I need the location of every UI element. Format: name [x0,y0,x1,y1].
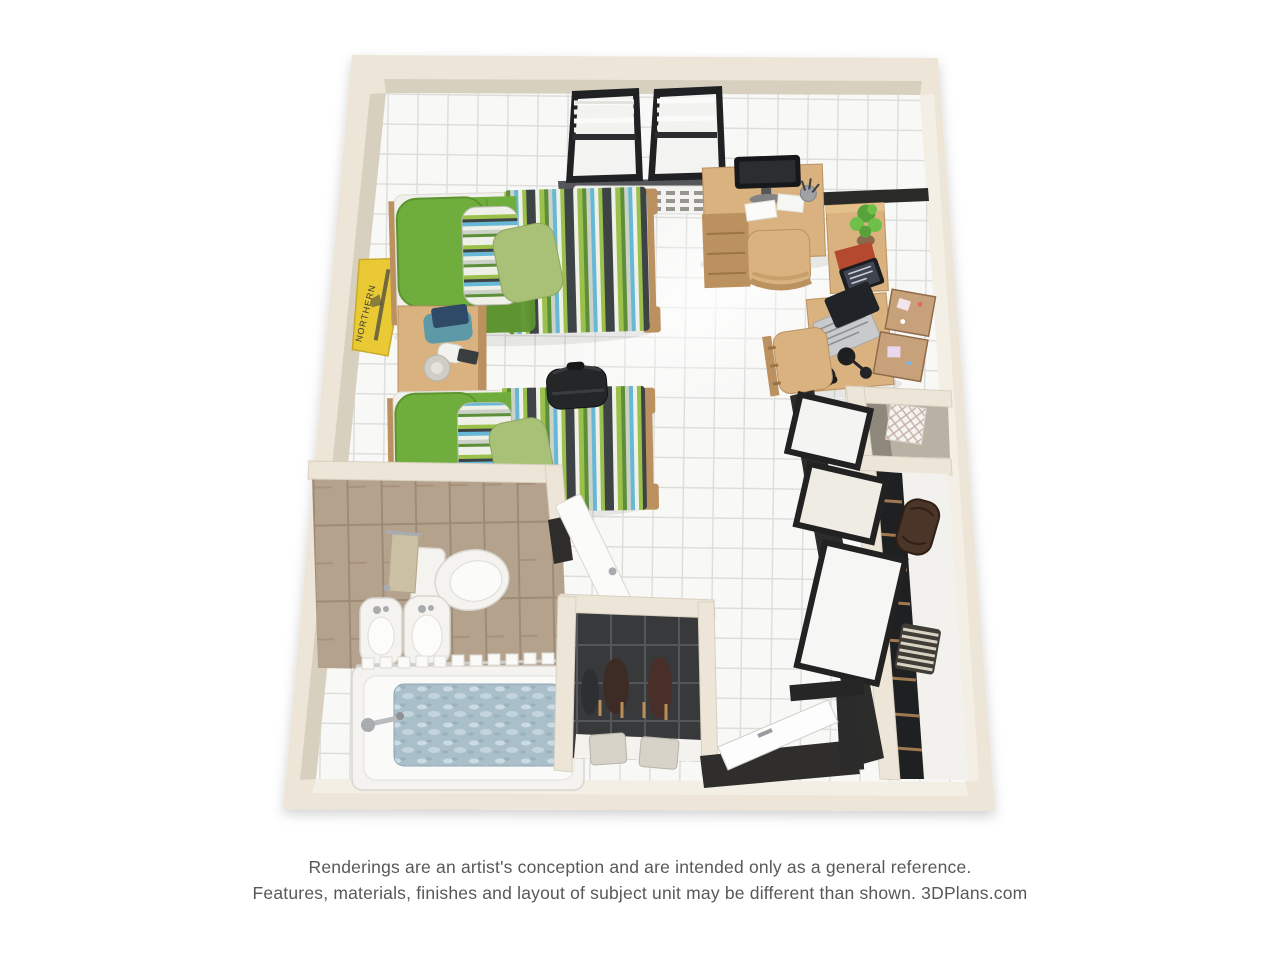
wardrobe-closet [554,594,718,776]
shoe-rack [894,623,941,675]
mirror-panel [787,395,870,468]
storage-basket [589,733,627,765]
window-left [566,88,643,183]
window-right-rail [655,132,717,138]
nightstand-side [478,306,486,392]
window-left-rail [572,134,636,140]
dresser [826,203,889,297]
pinned-note [887,346,900,357]
mirror-panel [796,464,886,542]
closet-wall-left [554,596,576,772]
top-wall-inner-face [384,79,922,95]
patterned-box [886,404,927,445]
bathroom-wall-top [308,461,562,483]
floor-plan-page: NORTHERN [0,0,1280,960]
disclaimer-line-2: Features, materials, finishes and layout… [0,880,1280,906]
sink-basin [368,617,394,655]
disclaimer-line-1: Renderings are an artist's conception an… [0,854,1280,880]
closet-wall-right [698,602,718,776]
monitor-screen [739,160,796,184]
faucet [418,605,426,613]
valve [384,585,391,592]
floor-plan-rendering: NORTHERN [0,0,1280,960]
corkboard [873,332,928,382]
nightstand [398,304,486,392]
pen-cup [800,185,817,202]
desk-1-drawers [702,213,751,289]
towel [388,533,419,593]
faucet [373,606,381,614]
entry-door-jamb [836,687,864,770]
sink-1 [360,598,402,664]
jar-lid [431,362,443,374]
faucet-handle [383,606,389,612]
storage-basket [639,736,679,769]
bathtub [352,666,584,790]
paper [777,194,805,213]
chair-seat [772,326,834,395]
sink-basin [412,615,442,657]
paper [745,200,777,221]
window-right [648,86,726,181]
desk-1-chair [747,229,811,289]
tub-water [394,684,562,766]
corkboard [885,289,935,336]
faucet-handle [428,605,434,611]
disclaimer: Renderings are an artist's conception an… [0,854,1280,906]
